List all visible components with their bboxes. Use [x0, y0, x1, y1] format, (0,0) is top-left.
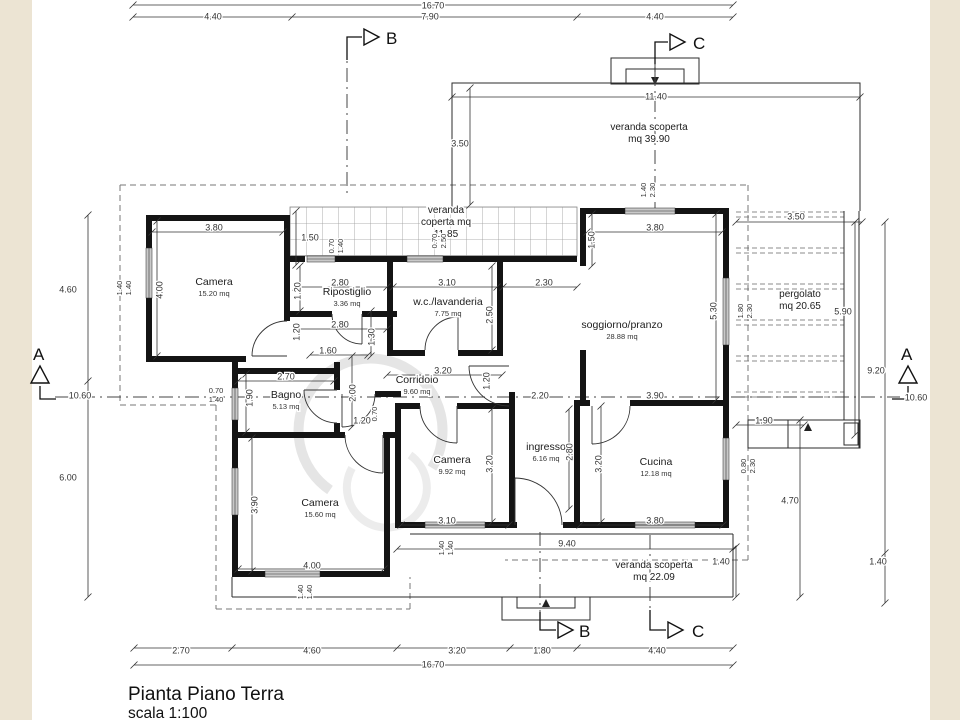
dimension-label: 4.40 — [646, 11, 664, 21]
dimension-label: 4.00 — [303, 560, 321, 570]
dimension-label: 1.40 — [639, 183, 648, 198]
dimension-label: 4.00 — [154, 281, 164, 299]
dimension-label: 2.20 — [531, 390, 549, 400]
dimension-label: 0.70 — [370, 407, 379, 422]
dimension-label: 1.40 — [305, 585, 314, 600]
zone-label: veranda scopertamq 39.90 — [610, 122, 688, 145]
dimension-label: 2.50 — [439, 234, 448, 249]
dimension-label: 1.20 — [292, 282, 302, 300]
room-label: Ripostiglio3.36 mq — [323, 286, 372, 308]
room-label: w.c./lavanderia7.75 mq — [412, 296, 483, 318]
drawing-title: Pianta Piano Terra scala 1:100 — [128, 684, 284, 720]
dimension-label: 1.40 — [712, 556, 730, 566]
dimension-label: 9.40 — [558, 538, 576, 548]
room-label: Camera15.20 mq — [195, 276, 233, 298]
dimension-label: 1.40 — [296, 585, 305, 600]
section-letter-c-bottom: C — [692, 622, 704, 641]
section-letter-a-right: A — [901, 345, 913, 364]
dimension-label: 4.60 — [59, 284, 77, 294]
room-label: ingresso6.16 mq — [526, 441, 566, 463]
dimension-label: 0.70 — [209, 386, 224, 395]
dimension-label: 1.30 — [366, 328, 376, 346]
dimension-label: 3.20 — [593, 455, 603, 473]
dimension-label: 2.30 — [535, 277, 553, 287]
dimension-label: 5.90 — [834, 306, 852, 316]
dimension-label: 2.30 — [648, 183, 657, 198]
dimension-label: 16.70 — [422, 0, 445, 10]
dimension-label: 5.30 — [708, 302, 718, 320]
dimension-label: 3.50 — [451, 138, 469, 148]
section-flag-b-bottom — [558, 622, 573, 638]
drawing-title-line1: Pianta Piano Terra — [128, 684, 284, 705]
dimension-label: 3.80 — [646, 222, 664, 232]
dimension-label: 1.40 — [869, 556, 887, 566]
dimension-label: 3.90 — [646, 390, 664, 400]
section-letter-c-top: C — [693, 34, 705, 53]
dimension-label: 1.60 — [319, 345, 337, 355]
room-label: soggiorno/pranzo28.88 mq — [581, 319, 662, 341]
dimension-label: 0.70 — [327, 239, 336, 254]
dimension-label: 4.40 — [648, 645, 666, 655]
dimension-label: 1.40 — [437, 541, 446, 556]
dimension-labels: 16.704.407.904.4011.403.503.503.803.801.… — [59, 0, 927, 669]
dimension-label: 1.40 — [446, 541, 455, 556]
dimension-label: 3.20 — [434, 365, 452, 375]
dimension-label: 3.20 — [448, 645, 466, 655]
dimension-label: 0.80 — [739, 459, 748, 474]
dimension-label: 3.10 — [438, 277, 456, 287]
section-flag-b-top — [364, 29, 379, 45]
section-flag-a-right — [899, 366, 917, 383]
dimension-label: 1.50 — [586, 231, 596, 249]
section-letter-b-bottom: B — [579, 622, 590, 641]
dimension-label: 2.50 — [484, 306, 494, 324]
floor-plan-canvas: B C B C A A veranda scopertamq 39.90vera… — [0, 0, 960, 720]
dimension-label: 6.00 — [59, 472, 77, 482]
dimension-label: 1.80 — [736, 304, 745, 319]
dimension-label: 1.20 — [291, 323, 301, 341]
section-letter-a-left: A — [33, 345, 45, 364]
section-markers — [31, 29, 917, 638]
section-letter-b-top: B — [386, 29, 397, 48]
dimension-label: 3.80 — [646, 515, 664, 525]
page-margin-right — [930, 0, 960, 720]
dimension-label: 4.40 — [204, 11, 222, 21]
dimension-label: 3.90 — [249, 496, 259, 514]
dimension-label: 1.40 — [124, 281, 133, 296]
dimension-label: 2.80 — [564, 443, 574, 461]
dimension-label: 2.70 — [277, 371, 295, 381]
zone-label: veranda scopertamq 22.09 — [615, 560, 693, 583]
dimension-label: 2.30 — [748, 459, 757, 474]
dimension-label: 9.20 — [867, 365, 885, 375]
page-margin-left — [0, 0, 32, 720]
dimension-label: 4.60 — [303, 645, 321, 655]
dimension-label: 3.20 — [484, 455, 494, 473]
dimension-label: 2.80 — [331, 319, 349, 329]
dimension-label: 3.80 — [205, 222, 223, 232]
dimension-label: 2.70 — [172, 645, 190, 655]
dimension-label: 2.80 — [331, 277, 349, 287]
section-flag-c-bottom — [668, 622, 683, 638]
dimension-label: 1.40 — [209, 395, 224, 404]
dimension-label: 0.70 — [430, 234, 439, 249]
room-label: Cucina12.18 mq — [640, 456, 673, 478]
dimension-label: 1.90 — [244, 389, 254, 407]
dimension-label: 1.90 — [755, 415, 773, 425]
room-label: Bagno5.13 mq — [271, 389, 302, 411]
dimension-label: 3.50 — [787, 211, 805, 221]
drawing-title-line2: scala 1:100 — [128, 705, 208, 720]
dimension-label: 1.20 — [481, 372, 491, 390]
dimension-label: 1.20 — [353, 415, 371, 425]
zone-label: pergolatomq 20.65 — [779, 289, 821, 312]
dimension-label: 1.40 — [115, 281, 124, 296]
dimension-label: 10.60 — [69, 390, 92, 400]
section-flag-c-top — [670, 34, 685, 50]
dimension-label: 1.40 — [336, 239, 345, 254]
dimension-label: 1.80 — [533, 645, 551, 655]
dimension-lines — [85, 2, 889, 669]
dimension-label: 4.70 — [781, 495, 799, 505]
room-label: Camera9.92 mq — [433, 454, 471, 476]
section-flag-a-left — [31, 366, 49, 383]
dimension-label: 10.60 — [905, 392, 928, 402]
dimension-label: 16.70 — [422, 659, 445, 669]
dimension-label: 3.10 — [438, 515, 456, 525]
dimension-label: 2.30 — [745, 304, 754, 319]
dimension-label: 7.90 — [421, 11, 439, 21]
room-label: Camera15.60 mq — [301, 497, 339, 519]
dimension-label: 2.00 — [347, 384, 357, 402]
dimension-label: 1.50 — [301, 232, 319, 242]
dimension-label: 11.40 — [645, 91, 667, 101]
thin-structure-lines — [232, 58, 860, 620]
